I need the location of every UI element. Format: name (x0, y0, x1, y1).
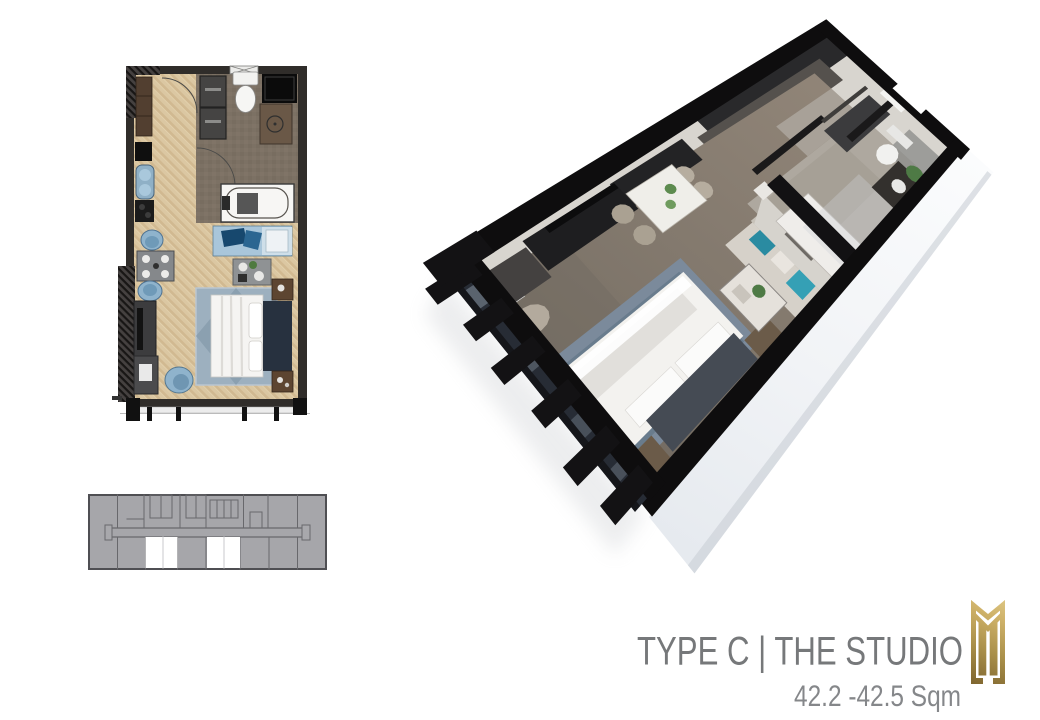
svg-text:42.2 -42.5 Sqm: 42.2 -42.5 Sqm (794, 680, 961, 713)
svg-text:TYPE C | THE STUDIO: TYPE C | THE STUDIO (637, 630, 963, 674)
